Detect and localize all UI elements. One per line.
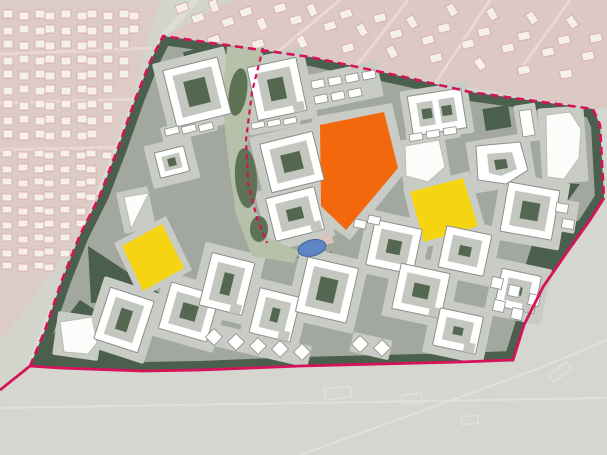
bg-building — [34, 222, 44, 229]
bg-building — [3, 10, 13, 18]
bg-building — [3, 57, 13, 65]
bg-building — [61, 70, 71, 78]
bg-building — [103, 72, 113, 80]
bg-building — [60, 234, 70, 241]
bg-building — [103, 85, 113, 93]
bg-building — [60, 150, 70, 157]
bg-building — [61, 57, 71, 65]
small-building — [507, 284, 520, 297]
bg-building — [103, 25, 113, 33]
bg-building — [76, 192, 86, 199]
bg-building — [76, 208, 86, 215]
bg-building — [2, 250, 12, 257]
bg-building — [18, 152, 28, 159]
bg-building — [2, 234, 12, 241]
bg-building — [129, 12, 139, 20]
bg-building — [2, 194, 12, 201]
bg-building — [119, 40, 129, 48]
bg-building — [45, 72, 55, 80]
bg-building — [119, 27, 129, 35]
bg-building — [77, 55, 87, 63]
small-building — [555, 203, 568, 214]
bg-building — [60, 194, 70, 201]
bg-building — [77, 25, 87, 33]
bg-building — [35, 87, 45, 95]
bg-building — [19, 72, 29, 80]
bg-building — [77, 102, 87, 110]
bg-building — [3, 40, 13, 48]
bg-building — [18, 264, 28, 271]
bg-building — [3, 27, 13, 35]
bg-building — [61, 130, 71, 138]
bg-building — [77, 85, 87, 93]
bg-building — [35, 10, 45, 18]
bg-building — [45, 55, 55, 63]
small-building — [426, 130, 440, 139]
bg-building — [61, 27, 71, 35]
courtyard-building — [500, 182, 560, 240]
corridor-trees — [250, 216, 268, 242]
bg-building — [61, 87, 71, 95]
bg-building — [119, 10, 129, 18]
bg-building — [60, 222, 70, 229]
small-building — [490, 276, 503, 289]
bg-building — [18, 164, 28, 171]
bg-building — [60, 166, 70, 173]
bg-building — [45, 12, 55, 20]
bg-building — [60, 206, 70, 213]
bg-building — [76, 152, 86, 159]
bg-building — [44, 152, 54, 159]
bg-building — [45, 25, 55, 33]
bg-building — [87, 10, 97, 18]
bg-building — [119, 70, 129, 78]
bg-building — [2, 222, 12, 229]
bg-building — [18, 192, 28, 199]
bg-building — [35, 40, 45, 48]
bg-building — [34, 194, 44, 201]
bg-building — [2, 166, 12, 173]
small-building — [443, 127, 457, 136]
bg-building — [44, 264, 54, 271]
bg-building — [44, 236, 54, 243]
bg-building — [103, 55, 113, 63]
bg-building — [45, 115, 55, 123]
bg-building — [60, 250, 70, 257]
bg-building — [44, 164, 54, 171]
bg-building — [102, 152, 112, 159]
bg-building — [18, 248, 28, 255]
bg-building — [86, 194, 96, 201]
bg-building — [34, 250, 44, 257]
bg-building — [581, 51, 594, 61]
small-building — [492, 299, 505, 312]
bg-building — [87, 40, 97, 48]
bg-building — [61, 40, 71, 48]
bg-building — [18, 236, 28, 243]
bg-building — [34, 206, 44, 213]
bg-building — [77, 115, 87, 123]
bg-building — [18, 208, 28, 215]
bg-building — [45, 102, 55, 110]
bg-building — [44, 208, 54, 215]
bg-building — [77, 132, 87, 140]
bg-building — [3, 87, 13, 95]
bg-building — [44, 192, 54, 199]
bg-building — [103, 115, 113, 123]
courtyard-building — [438, 226, 492, 277]
map-viewport[interactable] — [0, 0, 607, 455]
bg-building — [2, 178, 12, 185]
bg-building — [61, 100, 71, 108]
bg-building — [3, 70, 13, 78]
bg-building — [103, 102, 113, 110]
bg-building — [19, 55, 29, 63]
bg-building — [44, 180, 54, 187]
bg-building — [35, 70, 45, 78]
bg-building — [35, 57, 45, 65]
bg-building — [87, 57, 97, 65]
bg-building — [3, 130, 13, 138]
bg-building — [87, 27, 97, 35]
bg-building — [86, 166, 96, 173]
bg-building — [44, 248, 54, 255]
bg-building — [35, 117, 45, 125]
bg-building — [35, 130, 45, 138]
bg-building — [19, 25, 29, 33]
bg-building — [86, 178, 96, 185]
bg-building — [34, 178, 44, 185]
bg-building — [77, 42, 87, 50]
bg-building — [87, 87, 97, 95]
bg-building — [60, 178, 70, 185]
bg-building — [19, 102, 29, 110]
bg-building — [19, 12, 29, 20]
bg-building — [35, 100, 45, 108]
bg-building — [87, 70, 97, 78]
tree-square — [482, 105, 511, 131]
bg-building — [76, 180, 86, 187]
bg-building — [34, 166, 44, 173]
bg-building — [129, 25, 139, 33]
bg-building — [2, 262, 12, 269]
bg-building — [76, 164, 86, 171]
bg-building — [34, 234, 44, 241]
parcel-white-sw-parcel — [60, 317, 97, 354]
bg-building — [3, 117, 13, 125]
bg-building — [19, 85, 29, 93]
small-building — [409, 133, 423, 142]
bg-building — [2, 206, 12, 213]
bg-building — [103, 12, 113, 20]
bg-building — [2, 150, 12, 157]
bg-building — [19, 132, 29, 140]
bg-building — [61, 117, 71, 125]
bg-building — [45, 85, 55, 93]
bg-building — [103, 42, 113, 50]
bg-building — [18, 220, 28, 227]
bg-building — [87, 117, 97, 125]
bg-building — [18, 180, 28, 187]
bg-building — [34, 262, 44, 269]
bg-building — [45, 42, 55, 50]
bg-building — [87, 130, 97, 138]
bg-building — [45, 132, 55, 140]
masterplan-svg — [0, 0, 607, 455]
bg-building — [19, 42, 29, 50]
bg-building — [86, 150, 96, 157]
bg-building — [19, 115, 29, 123]
bg-building — [119, 57, 129, 65]
bg-building — [34, 150, 44, 157]
bg-building — [87, 100, 97, 108]
bg-building — [44, 220, 54, 227]
slab-building — [407, 88, 467, 136]
courtyard-building — [247, 57, 307, 120]
bg-building — [77, 12, 87, 20]
small-building — [510, 307, 523, 320]
bg-building — [61, 10, 71, 18]
bg-building — [3, 100, 13, 108]
small-building — [561, 219, 574, 230]
bg-building — [35, 27, 45, 35]
bg-building — [559, 69, 572, 79]
bg-building — [589, 33, 602, 43]
bg-building — [77, 72, 87, 80]
